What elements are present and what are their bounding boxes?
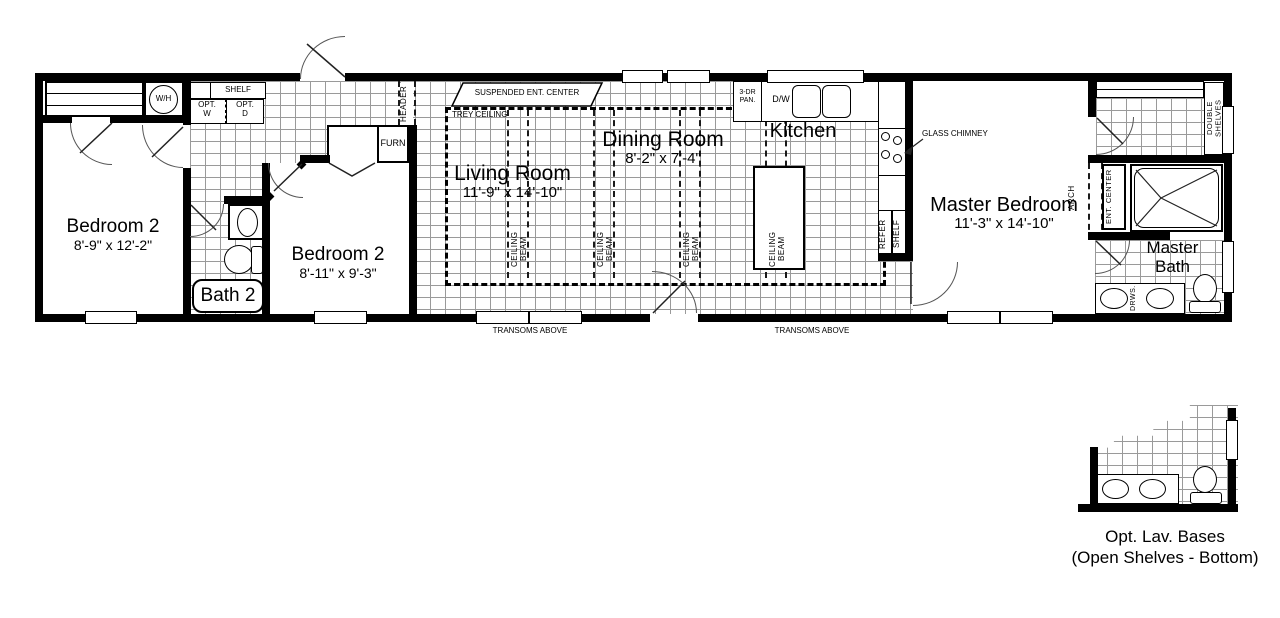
- rear-door-opening: [650, 314, 698, 322]
- bedroom2-left-door-arc: [142, 125, 183, 168]
- front-door-arc: [300, 36, 345, 79]
- window-transom: [529, 311, 582, 324]
- floor-plan-canvas: W/H SHELF OPT. W OPT. D Bath 2 FURN 3-DR…: [0, 0, 1280, 618]
- kitchen-sink-basin: [792, 85, 821, 118]
- inset-lav-sink: [1102, 479, 1129, 499]
- burner: [893, 154, 902, 163]
- window: [314, 311, 367, 324]
- window: [1222, 106, 1234, 154]
- wall-closet-bedroom2-left: [42, 115, 72, 123]
- burner: [881, 150, 890, 159]
- wall-exterior-left: [35, 73, 43, 322]
- bath2-sink: [237, 208, 258, 237]
- room-label-kitchen: Kitchen: [753, 120, 853, 142]
- furnace-label: FURN: [377, 138, 409, 148]
- transoms-label: TRANSOMS ABOVE: [460, 327, 600, 336]
- inset-caption-line1: Opt. Lav. Bases: [1050, 527, 1280, 546]
- shelf-line: [47, 105, 142, 106]
- pantry-label: 3-DR PAN.: [733, 89, 762, 105]
- ceiling-beam-label: CEILING BEAM: [769, 218, 781, 280]
- window-transom: [947, 311, 1000, 324]
- inset-toilet-tank: [1190, 492, 1222, 504]
- room-dims-bedroom2-left: 8'-9" x 12'-2": [42, 238, 184, 254]
- inset-wall-left: [1090, 447, 1098, 504]
- window: [767, 70, 864, 83]
- bedroom2-left-closet-door-arc: [70, 123, 112, 165]
- room-label-dining: Dining Room: [568, 128, 758, 152]
- kitchen-sink-basin: [822, 85, 851, 118]
- window: [667, 70, 710, 83]
- double-shelves-label: DOUBLE SHELVES: [1206, 84, 1222, 153]
- inset-toilet-bowl: [1193, 466, 1217, 493]
- wall-master-closet-south: [1088, 155, 1225, 163]
- bath2-label: Bath 2: [192, 285, 264, 306]
- room-label-bedroom2-left: Bedroom 2: [42, 216, 184, 237]
- laundry-shelf-divider: [210, 83, 211, 98]
- room-dims-living: 11'-9" x 14'-10": [420, 185, 605, 202]
- transoms-label: TRANSOMS ABOVE: [742, 327, 882, 336]
- wall-kitchen-east: [905, 81, 913, 261]
- burner: [881, 132, 890, 141]
- wall-master-closet-stub: [1088, 81, 1096, 117]
- wall-livingroom-west: [409, 125, 417, 314]
- room-dims-bedroom2-mid: 8'-11" x 9'-3": [266, 266, 410, 282]
- room-dims-master-bedroom: 11'-3" x 14'-10": [915, 216, 1093, 233]
- master-toilet-bowl: [1193, 274, 1217, 303]
- arch-label: ARCH: [1068, 176, 1081, 220]
- water-heater-label: W/H: [149, 95, 178, 104]
- burner: [893, 136, 902, 145]
- master-lav-sink: [1146, 288, 1174, 309]
- kitchen-shelf-label: SHELF: [893, 212, 905, 256]
- header-line-right: [414, 81, 416, 125]
- inset-lav-sink: [1139, 479, 1166, 499]
- laundry-shelf-label: SHELF: [212, 86, 264, 95]
- master-tub-inner: [1134, 168, 1219, 228]
- wall-bedroom2-left-east: [183, 168, 191, 314]
- inset-wall-bottom: [1078, 504, 1238, 512]
- room-dims-dining: 8'-2" x 7'-4": [568, 151, 758, 168]
- window: [85, 311, 137, 324]
- closet-bedroom2-mid: [327, 125, 379, 163]
- master-lav-sink: [1100, 288, 1128, 309]
- wall-closet-bedroom2-left: [110, 115, 190, 123]
- ceiling-beam-label: CEILING BEAM: [511, 218, 523, 280]
- ceiling-beam-label: CEILING BEAM: [683, 218, 695, 280]
- shelf-line: [47, 93, 142, 94]
- opt-washer-label: OPT. W: [188, 101, 226, 119]
- room-label-master-bath: Master Bath: [1130, 238, 1215, 276]
- suspended-ent-center-label: SUSPENDED ENT. CENTER: [455, 89, 599, 98]
- window: [622, 70, 663, 83]
- window: [1222, 241, 1234, 293]
- window-transom: [1000, 311, 1053, 324]
- ceiling-beam-label: CEILING BEAM: [597, 218, 609, 280]
- inset-window: [1226, 420, 1238, 460]
- master-bedroom-door-arc: [913, 262, 958, 306]
- master-toilet-tank: [1189, 301, 1221, 313]
- refrigerator-label: REFER: [879, 212, 891, 256]
- opt-dryer-label: OPT. D: [226, 101, 264, 119]
- window-transom: [476, 311, 529, 324]
- drawers-label: DRWS.: [1130, 285, 1140, 312]
- ent-center-label: ENT. CENTER: [1105, 167, 1123, 227]
- dishwasher-label: D/W: [766, 94, 796, 104]
- inset-caption-line2: (Open Shelves - Bottom): [1050, 548, 1280, 567]
- trey-ceiling-label: TREY CEILING: [452, 111, 542, 120]
- inset-wall-right: [1228, 458, 1236, 504]
- room-label-bedroom2-mid: Bedroom 2: [266, 244, 410, 265]
- closet-shelves-bedroom2-left: [45, 81, 144, 117]
- bath2-toilet-bowl: [224, 245, 254, 274]
- shelf-line: [1097, 89, 1203, 90]
- glass-chimney-label: GLASS CHIMNEY: [922, 130, 1002, 139]
- header-label: HEADER: [400, 83, 413, 125]
